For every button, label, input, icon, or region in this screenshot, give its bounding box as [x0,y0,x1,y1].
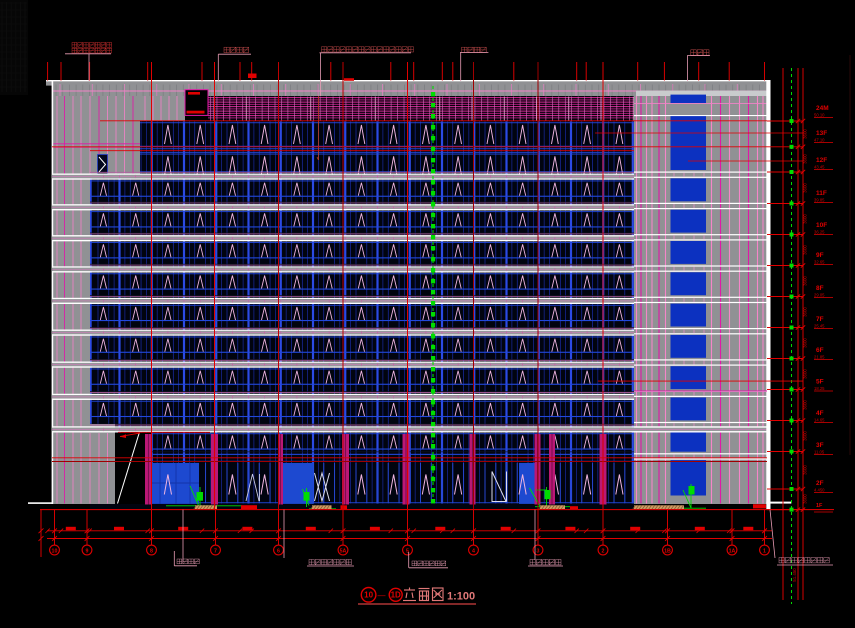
svg-text:25.45: 25.45 [814,324,825,329]
svg-text:7F: 7F [816,316,824,323]
svg-text:3600: 3600 [803,431,808,441]
svg-text:1F: 1F [816,503,823,509]
svg-text:6F: 6F [816,347,824,354]
svg-text:3F: 3F [816,442,824,449]
svg-text:2F: 2F [816,480,824,487]
svg-text:32.65: 32.65 [814,260,825,265]
svg-text:6: 6 [277,548,280,554]
svg-text:3600: 3600 [803,307,808,317]
svg-text:10: 10 [364,591,373,600]
svg-text:10F: 10F [816,222,827,229]
svg-text:3600: 3600 [803,129,808,139]
svg-text:1: 1 [763,548,766,554]
svg-text:1D: 1D [391,591,401,600]
svg-text:3600: 3600 [803,465,808,475]
svg-text:24M: 24M [816,105,829,112]
svg-text:1B: 1B [664,548,671,554]
svg-text:3600: 3600 [803,154,808,164]
svg-text:18.25: 18.25 [814,386,825,391]
svg-text:1:100: 1:100 [447,591,475,603]
svg-text:12F: 12F [816,157,827,164]
svg-text:10: 10 [52,548,58,554]
svg-text:5A: 5A [340,548,347,554]
svg-text:8F: 8F [816,285,824,292]
svg-text:36.25: 36.25 [814,230,825,235]
svg-text:47.10: 47.10 [814,138,825,143]
svg-text:14.65: 14.65 [814,418,825,423]
svg-text:9: 9 [86,548,89,554]
svg-text:4: 4 [472,548,475,554]
svg-text:39.85: 39.85 [814,198,825,203]
svg-text:3600: 3600 [803,338,808,348]
svg-text:11.05: 11.05 [814,450,825,455]
svg-text:3: 3 [537,548,540,554]
svg-text:43.45: 43.45 [814,165,825,170]
svg-text:9F: 9F [816,252,824,259]
svg-text:2: 2 [602,548,605,554]
svg-text:11F: 11F [816,190,827,197]
svg-text:51.450: 51.450 [792,568,797,582]
svg-text:4.450: 4.450 [814,488,825,493]
svg-text:3600: 3600 [803,183,808,193]
svg-text:1A: 1A [729,548,736,554]
svg-text:29.05: 29.05 [814,293,825,298]
svg-text:8: 8 [150,548,153,554]
svg-text:7: 7 [214,548,217,554]
svg-text:50.10: 50.10 [814,113,825,118]
svg-text:4F: 4F [816,410,824,417]
svg-text:3600: 3600 [803,245,808,255]
svg-text:3600: 3600 [803,276,808,286]
svg-text:13F: 13F [816,130,827,137]
svg-text:21.85: 21.85 [814,355,825,360]
svg-text:3600: 3600 [803,494,808,504]
svg-text:3600: 3600 [803,369,808,379]
svg-text:5F: 5F [816,379,824,386]
svg-text:—: — [378,591,386,600]
svg-text:3600: 3600 [803,214,808,224]
svg-text:3600: 3600 [803,400,808,410]
